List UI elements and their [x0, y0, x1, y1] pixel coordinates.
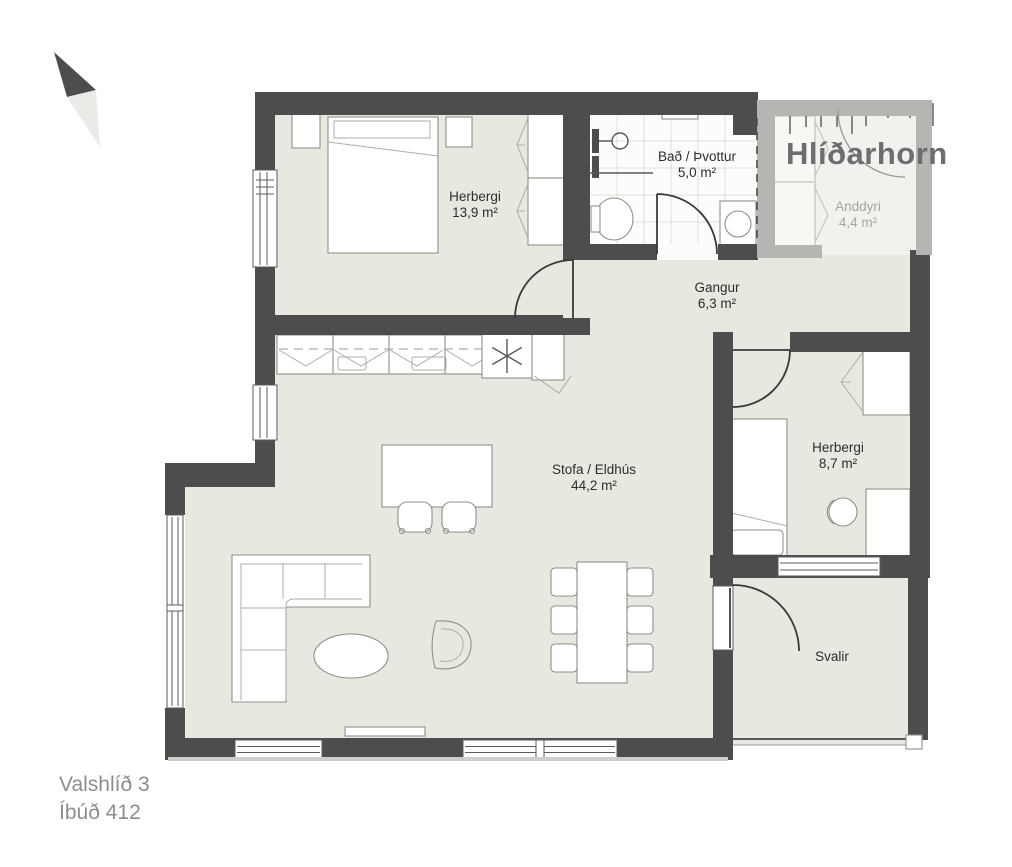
window: [253, 385, 277, 440]
floorplan-page: Herbergi 13,9 m² Bað / Þvottur 5,0 m² An…: [0, 0, 1012, 867]
room-name: Herbergi: [812, 440, 864, 456]
room-label-bad: Bað / Þvottur 5,0 m²: [658, 149, 736, 181]
ground-line: [168, 757, 728, 761]
coffee-table: [314, 634, 388, 678]
window: [235, 740, 322, 758]
north-arrow-icon: [54, 52, 100, 147]
room-name: Gangur: [694, 280, 739, 296]
desk-chair: [827, 498, 857, 526]
desk: [866, 489, 910, 556]
washing-machine-icon: [720, 201, 756, 246]
bar-stool: [398, 502, 432, 534]
room-label-anddyri: Anddyri 4,4 m²: [835, 199, 881, 231]
brand-logo: Hlíðarhorn: [786, 136, 948, 172]
room-area: 13,9 m²: [449, 205, 501, 221]
nightstand: [292, 114, 320, 148]
room-label-stofa: Stofa / Eldhús 44,2 m²: [552, 462, 636, 494]
room-name: Bað / Þvottur: [658, 149, 736, 165]
room-label-gangur: Gangur 6,3 m²: [694, 280, 739, 312]
project-unit: Íbúð 412: [59, 799, 150, 827]
room-area: 6,3 m²: [694, 296, 739, 312]
room-name: Anddyri: [835, 199, 881, 215]
nightstand: [446, 117, 472, 147]
bar-stool: [442, 502, 476, 534]
room-name: Stofa / Eldhús: [552, 462, 636, 478]
room-area: 4,4 m²: [835, 215, 881, 231]
single-bed: [727, 419, 787, 557]
window: [778, 557, 880, 576]
cooktop-icon: [482, 334, 532, 378]
room-label-svalir: Svalir: [815, 649, 849, 665]
room-name: Herbergi: [449, 189, 501, 205]
window: [463, 740, 617, 758]
room-label-herbergi-1: Herbergi 13,9 m²: [449, 189, 501, 221]
double-bed: [328, 117, 438, 253]
door-gap: [733, 332, 790, 352]
window: [167, 515, 183, 708]
kitchen-island: [382, 445, 492, 507]
room-area: 5,0 m²: [658, 165, 736, 181]
project-address: Valshlíð 3: [59, 771, 150, 799]
room-name: Svalir: [815, 649, 849, 665]
dining-table: [577, 562, 627, 683]
room-area: 44,2 m²: [552, 478, 636, 494]
door-gap: [563, 260, 590, 318]
project-info: Valshlíð 3 Íbúð 412: [59, 771, 150, 827]
window: [253, 170, 277, 267]
room-area: 8,7 m²: [812, 456, 864, 472]
door-gap: [657, 244, 718, 260]
room-label-herbergi-2: Herbergi 8,7 m²: [812, 440, 864, 472]
tv-bench: [345, 727, 425, 736]
floorplan-drawing: [0, 0, 1012, 867]
